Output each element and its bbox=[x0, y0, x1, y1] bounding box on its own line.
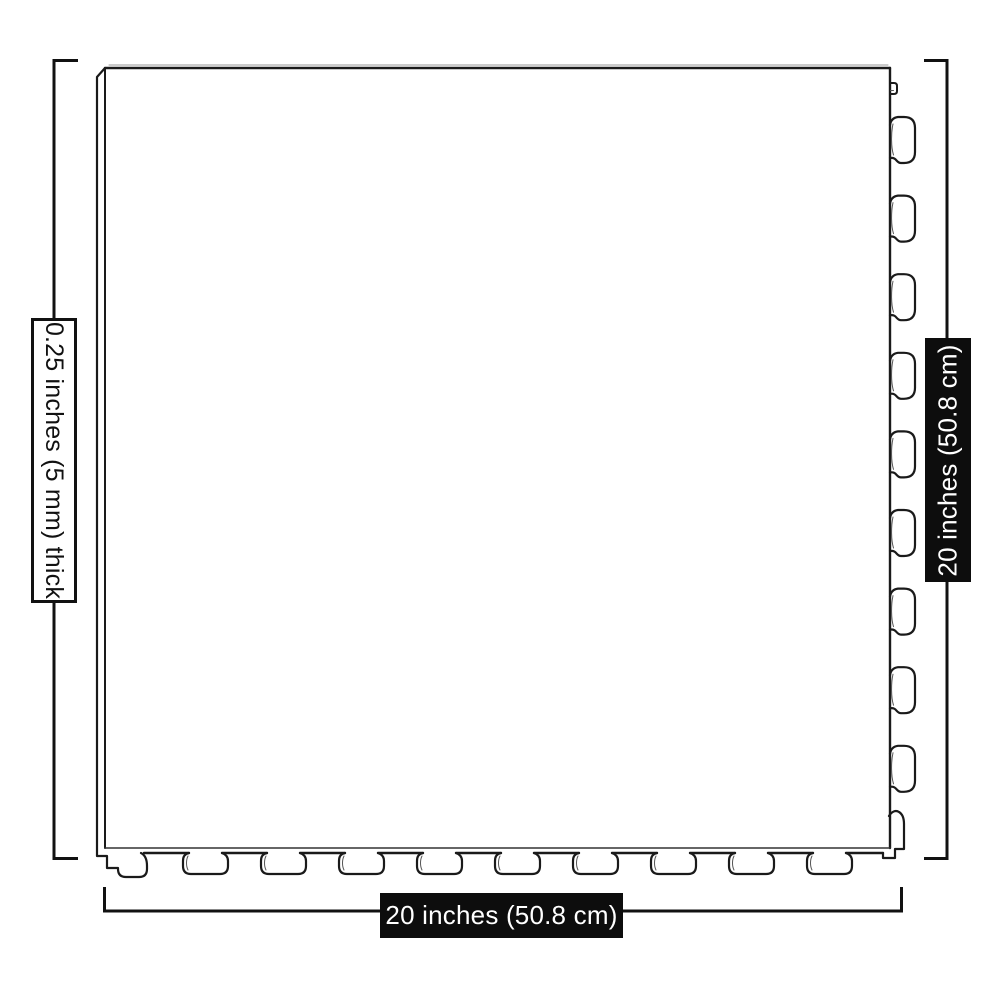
dimension-lines bbox=[54, 59, 947, 911]
right-tab bbox=[890, 589, 915, 635]
bottom-tab bbox=[261, 853, 306, 874]
right-tab-bevel-line bbox=[892, 124, 894, 155]
right-tab-bevel-line bbox=[892, 753, 894, 784]
bottom-tab bbox=[729, 853, 774, 874]
bottom-tab-bevel-line bbox=[187, 856, 189, 870]
tile-drawing bbox=[97, 65, 915, 877]
right-tab-bevel-line bbox=[892, 517, 894, 548]
right-tab-bevel-line bbox=[892, 203, 894, 234]
bottom-tab bbox=[339, 853, 384, 874]
right-tab bbox=[890, 667, 915, 713]
right-tab bbox=[890, 510, 915, 556]
bottom-tab bbox=[651, 853, 696, 874]
width-dimension-text: 20 inches (50.8 cm) bbox=[385, 900, 617, 931]
thickness-dimension-text: 0.25 inches (5 mm) thick bbox=[40, 322, 69, 599]
right-tab bbox=[890, 746, 915, 792]
right-tab bbox=[890, 353, 915, 399]
bottom-tab-bevel-line bbox=[343, 856, 345, 870]
bottom-tab bbox=[417, 853, 462, 874]
height-dimension-text: 20 inches (50.8 cm) bbox=[933, 344, 964, 576]
bottom-tab bbox=[807, 853, 852, 874]
right-tab-bevel-line bbox=[892, 360, 894, 391]
tile-corner-tab bbox=[883, 811, 904, 858]
bottom-tab-bevel-line bbox=[733, 856, 735, 870]
right-tab bbox=[890, 196, 915, 242]
tile-dimension-diagram: 0.25 inches (5 mm) thick 20 inches (50.8… bbox=[0, 0, 1000, 1000]
right-tab-bevel-line bbox=[892, 438, 894, 469]
bottom-tab bbox=[573, 853, 618, 874]
bottom-tab bbox=[183, 853, 228, 874]
right-tab-bevel-line bbox=[892, 596, 894, 627]
right-tab-bevel-line bbox=[892, 281, 894, 312]
right-tab bbox=[890, 431, 915, 477]
tile-svg bbox=[0, 0, 1000, 1000]
bottom-edge-tabs bbox=[183, 853, 852, 874]
bottom-tab-bevel-line bbox=[811, 856, 813, 870]
right-tab bbox=[890, 274, 915, 320]
right-tab-bevel-line bbox=[892, 674, 894, 705]
bottom-tab-bevel-line bbox=[265, 856, 267, 870]
bottom-tab-bevel-line bbox=[499, 856, 501, 870]
thickness-dimension-label: 0.25 inches (5 mm) thick bbox=[31, 318, 77, 603]
right-edge-tabs bbox=[890, 117, 915, 792]
height-dimension-label: 20 inches (50.8 cm) bbox=[925, 338, 971, 582]
bottom-tab-bevel-line bbox=[655, 856, 657, 870]
bottom-tab-bevel-line bbox=[577, 856, 579, 870]
width-dimension-label: 20 inches (50.8 cm) bbox=[380, 893, 623, 938]
bottom-tab-bevel-line bbox=[421, 856, 423, 870]
right-tab bbox=[890, 117, 915, 163]
bottom-tab bbox=[495, 853, 540, 874]
